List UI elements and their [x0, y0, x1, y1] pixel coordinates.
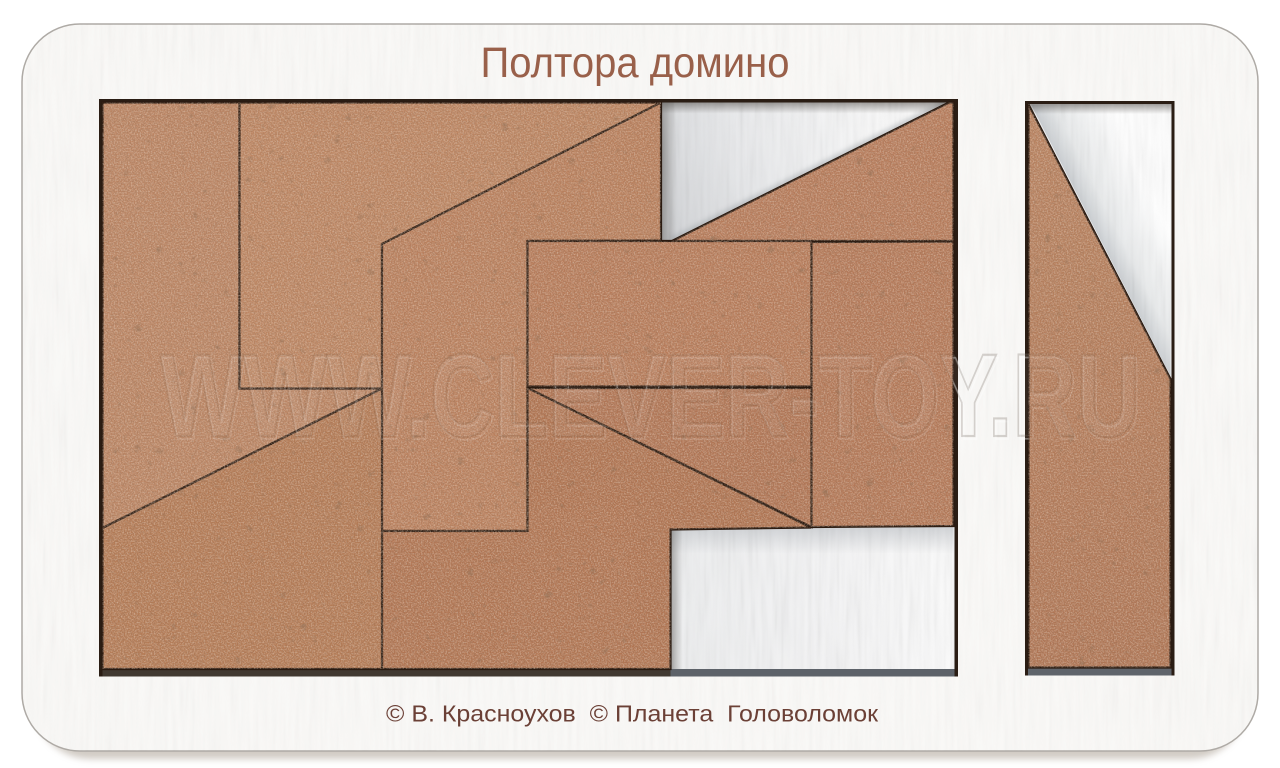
svg-text:Полтора домино: Полтора домино — [481, 40, 790, 87]
svg-text:© В. Красноухов © Планета Го: © В. Красноухов © Планета Головоломок — [386, 701, 879, 727]
